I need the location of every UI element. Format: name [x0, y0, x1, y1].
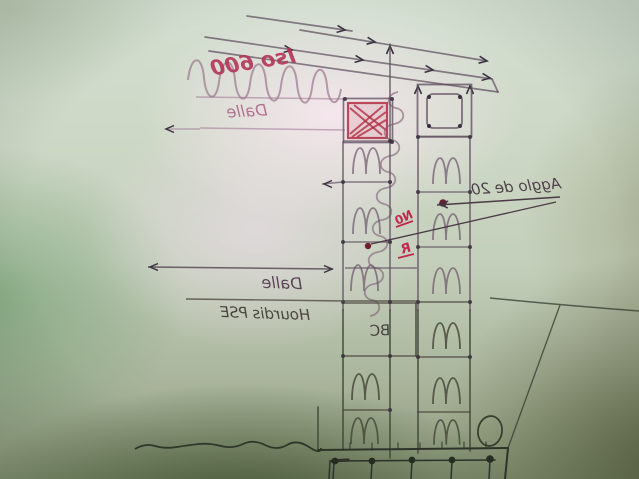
block-hatch-arcs-lower — [351, 323, 460, 445]
red-point-marks: N0 R — [392, 207, 415, 258]
terrain-slope-lines — [490, 298, 639, 448]
rebar-corner-dots — [427, 95, 462, 128]
block-wall-leader — [365, 197, 560, 249]
sketch-drawing: Dalle — [0, 0, 639, 479]
top-slab-label: Dalle — [226, 100, 268, 121]
floor-system-label: Hourdis PSE — [219, 303, 311, 324]
floor-slab-label: Dalle — [261, 273, 303, 293]
ground-wavy-line — [135, 442, 321, 452]
conduit-circle — [476, 414, 504, 447]
column-label: BC — [369, 321, 390, 340]
beam-section-square — [418, 85, 472, 137]
floor-slab-lines — [148, 264, 345, 302]
photo-of-sketch: Dalle — [0, 0, 639, 479]
block-wall-label: Agglo de 20 — [470, 174, 562, 198]
